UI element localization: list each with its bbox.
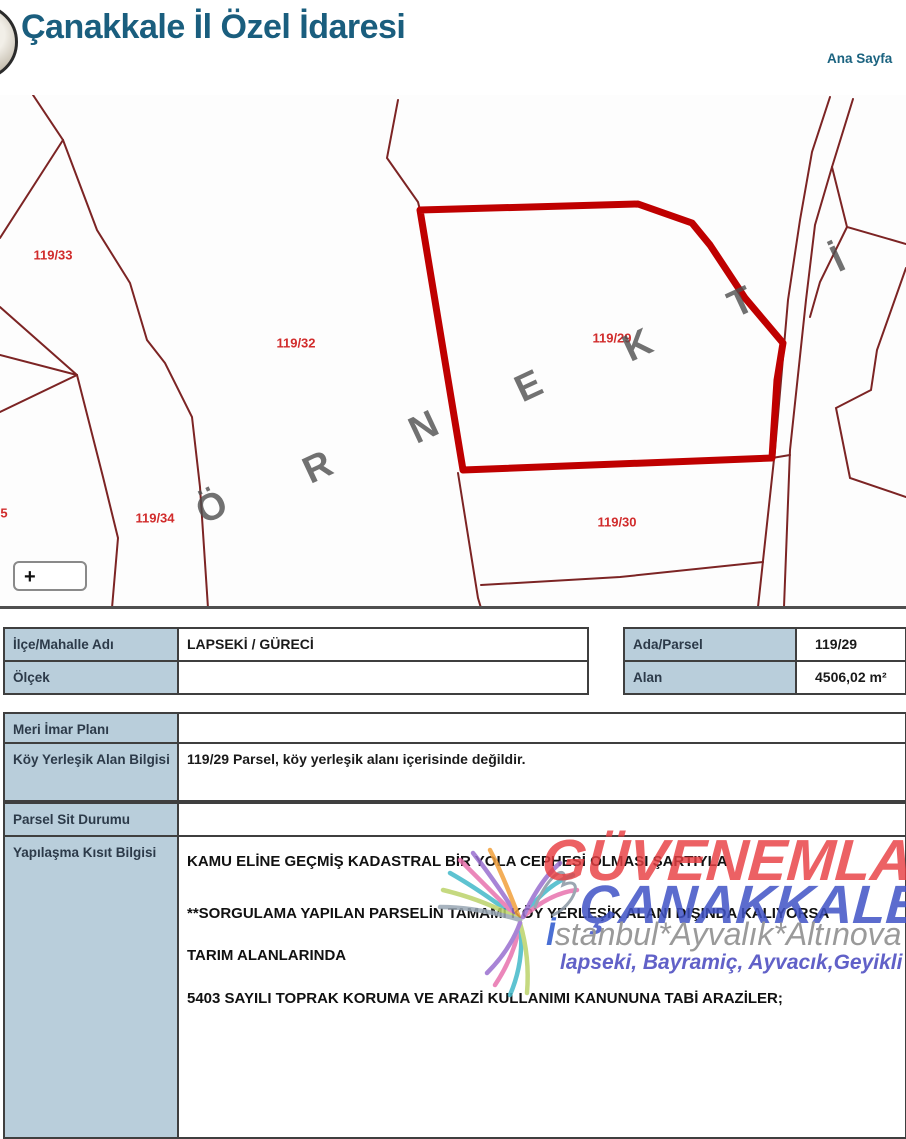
yapilasma-line-3: TARIM ALANLARINDA: [179, 924, 905, 966]
table-row: Ada/Parsel 119/29: [625, 629, 905, 660]
parcel-info-table: Ada/Parsel 119/29 Alan 4506,02 m²: [623, 627, 906, 695]
yapilasma-kisit-label: Yapılaşma Kısıt Bilgisi: [5, 837, 179, 1137]
olcek-label: Ölçek: [5, 662, 179, 693]
table-row: Yapılaşma Kısıt Bilgisi KAMU ELİNE GEÇMİ…: [5, 835, 905, 1137]
parsel-sit-durumu-label: Parsel Sit Durumu: [5, 804, 179, 835]
header: Çanakkale İl Özel İdaresi: [0, 0, 906, 95]
provincial-administration-logo: [0, 4, 18, 80]
meri-imar-plani-label: Meri İmar Planı: [5, 714, 179, 742]
map-zoom-in-button[interactable]: +: [13, 561, 87, 591]
table-row: Ölçek: [5, 660, 587, 693]
ilce-mahalle-value: LAPSEKİ / GÜRECİ: [179, 629, 587, 660]
ilce-mahalle-label: İlçe/Mahalle Adı: [5, 629, 179, 660]
meri-imar-plani-value: [179, 714, 905, 742]
parcel-label-119-34: 119/34: [135, 511, 174, 526]
yapilasma-line-2: **SORGULAMA YAPILAN PARSELİN TAMAMI KÖY …: [179, 872, 905, 924]
map-bottom-border: [0, 606, 906, 609]
koy-yerlesik-alan-value: 119/29 Parsel, köy yerleşik alanı içeris…: [179, 744, 905, 800]
parcel-label-119-30: 119/30: [597, 515, 636, 530]
cadastral-map-canvas[interactable]: 119/33 119/32 119/29 119/34 119/30 5 Ö R…: [0, 95, 906, 607]
alan-value: 4506,02 m²: [797, 662, 905, 693]
table-row: Köy Yerleşik Alan Bilgisi 119/29 Parsel,…: [5, 742, 905, 800]
olcek-value: [179, 662, 587, 693]
table-row: Meri İmar Planı: [5, 714, 905, 742]
table-row: Alan 4506,02 m²: [625, 660, 905, 693]
ada-parsel-label: Ada/Parsel: [625, 629, 797, 660]
page-title: Çanakkale İl Özel İdaresi: [21, 8, 405, 47]
table-row: Parsel Sit Durumu: [5, 800, 905, 835]
parsel-sit-durumu-value: [179, 804, 905, 835]
yapilasma-kisit-value: KAMU ELİNE GEÇMİŞ KADASTRAL BİR YOLA CEP…: [179, 837, 905, 1137]
koy-yerlesik-alan-label: Köy Yerleşik Alan Bilgisi: [5, 744, 179, 800]
ada-parsel-value: 119/29: [797, 629, 905, 660]
parcel-label-edge-partial: 5: [0, 506, 7, 521]
yapilasma-line-4: 5403 SAYILI TOPRAK KORUMA VE ARAZİ KULLA…: [179, 966, 905, 1009]
parcel-lines-layer: [0, 95, 906, 607]
parcel-detail-table: Meri İmar Planı Köy Yerleşik Alan Bilgis…: [3, 712, 906, 1139]
parcel-label-119-32: 119/32: [276, 336, 315, 351]
yapilasma-line-1: KAMU ELİNE GEÇMİŞ KADASTRAL BİR YOLA CEP…: [179, 837, 905, 872]
location-info-table: İlçe/Mahalle Adı LAPSEKİ / GÜRECİ Ölçek: [3, 627, 589, 695]
parcel-label-119-33: 119/33: [33, 248, 72, 263]
alan-label: Alan: [625, 662, 797, 693]
nav-home-link[interactable]: Ana Sayfa: [827, 51, 892, 66]
table-row: İlçe/Mahalle Adı LAPSEKİ / GÜRECİ: [5, 629, 587, 660]
